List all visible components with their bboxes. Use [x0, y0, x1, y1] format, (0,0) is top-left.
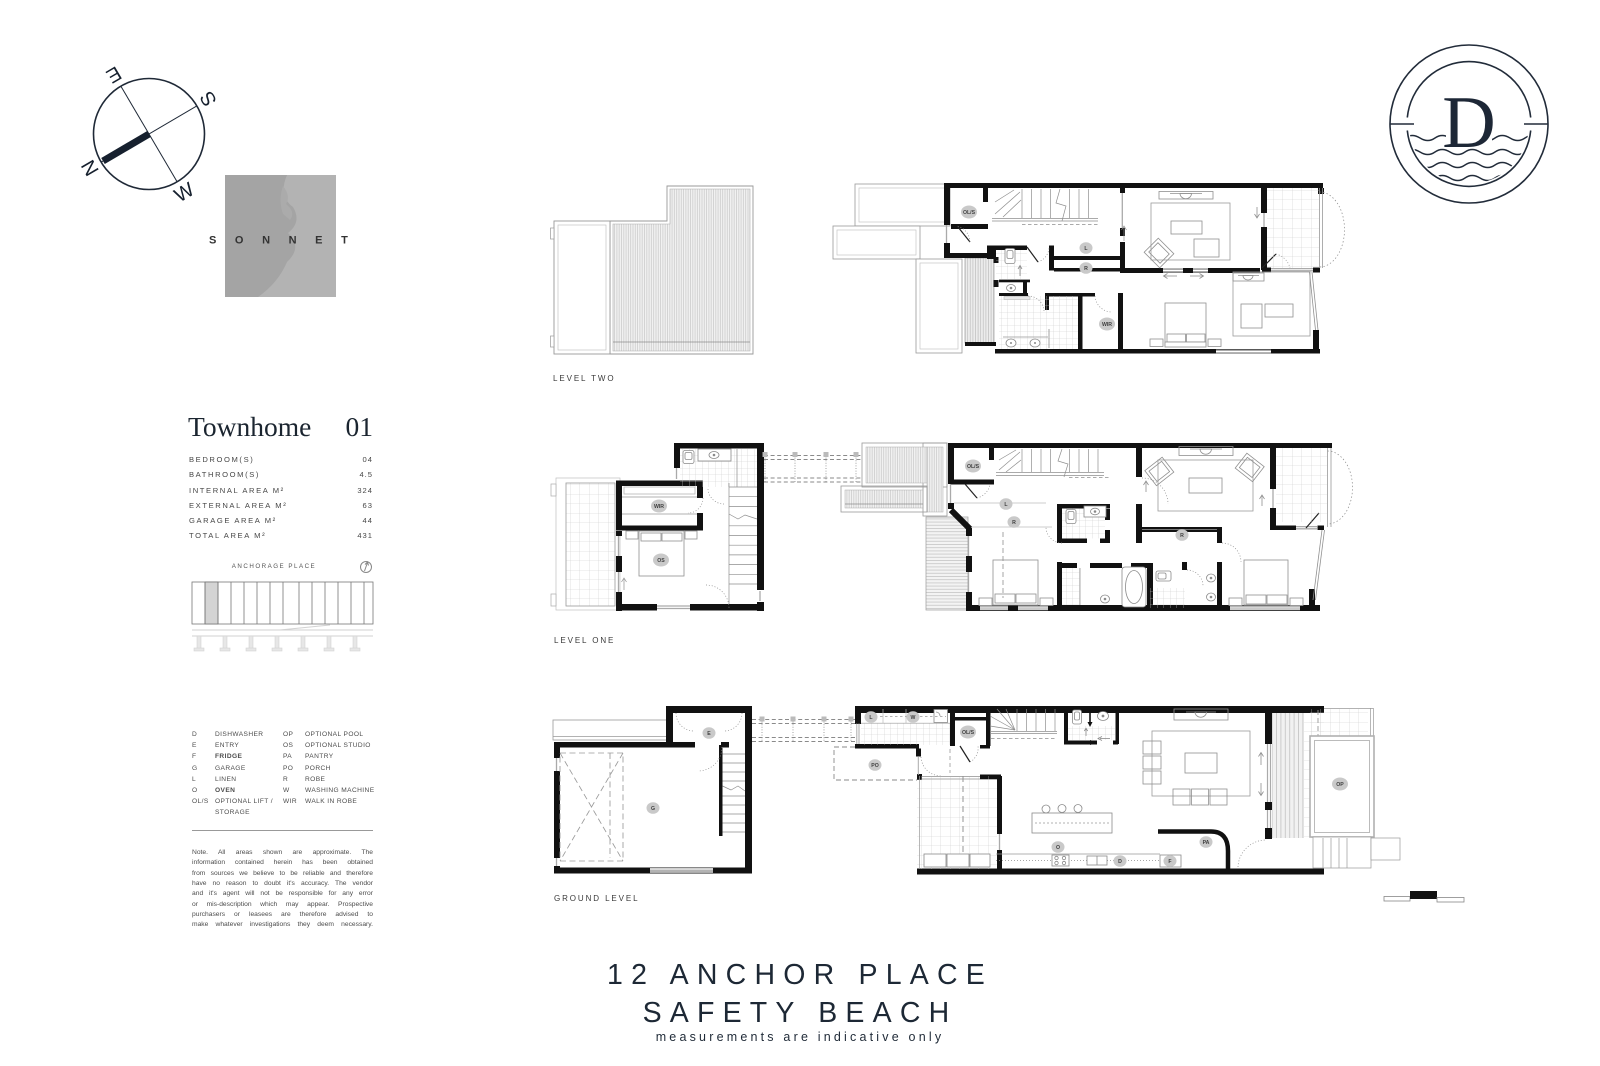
svg-text:E: E	[102, 61, 125, 87]
svg-text:O: O	[1056, 845, 1060, 851]
svg-text:PA: PA	[1203, 840, 1210, 846]
svg-text:SONNET: SONNET	[209, 235, 366, 247]
svg-text:OL/S: OL/S	[963, 210, 976, 216]
svg-text:PO: PO	[871, 763, 879, 769]
svg-text:D: D	[1442, 82, 1495, 164]
svg-text:W: W	[911, 715, 916, 721]
svg-text:R: R	[1012, 520, 1016, 526]
svg-text:S: S	[196, 87, 222, 110]
svg-text:E: E	[707, 731, 711, 737]
svg-text:OL/S: OL/S	[967, 464, 980, 470]
svg-text:F: F	[1168, 859, 1171, 865]
svg-text:D: D	[1118, 859, 1122, 865]
svg-text:OL/S: OL/S	[962, 730, 975, 736]
svg-text:G: G	[651, 806, 655, 812]
svg-text:R: R	[1084, 266, 1088, 272]
svg-text:OS: OS	[657, 558, 665, 564]
svg-text:N: N	[76, 157, 102, 181]
svg-text:R: R	[1180, 533, 1184, 539]
svg-text:WIR: WIR	[654, 504, 664, 510]
svg-text:OP: OP	[1336, 782, 1344, 788]
svg-text:WIR: WIR	[1102, 322, 1112, 328]
